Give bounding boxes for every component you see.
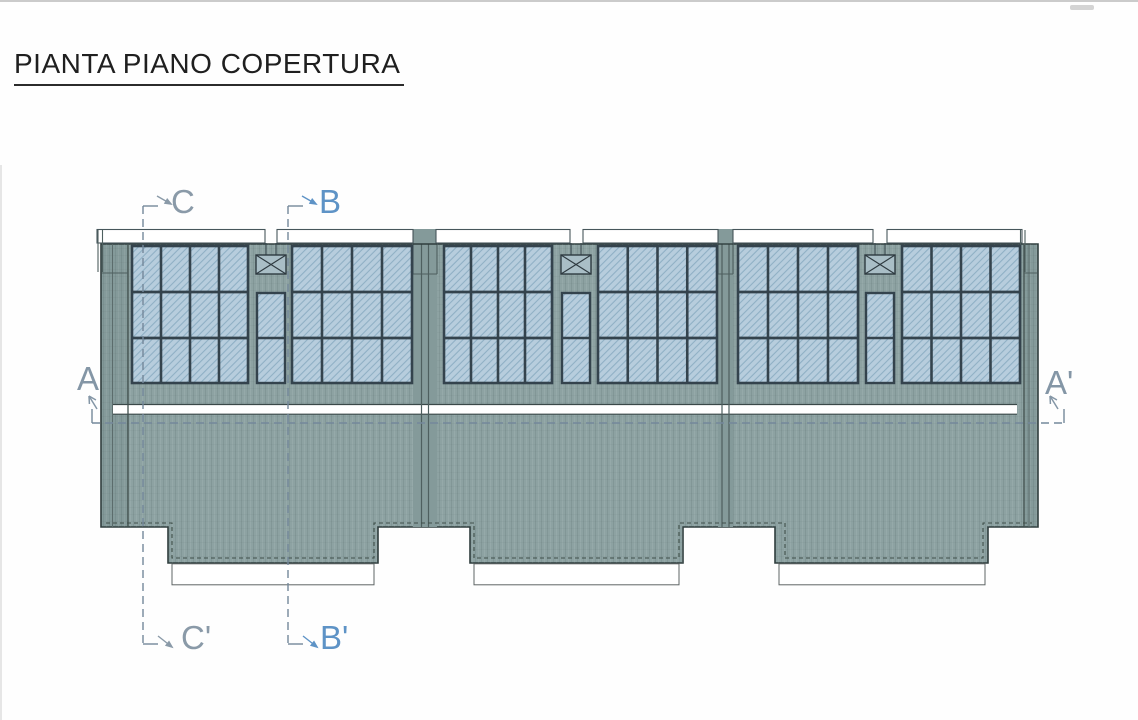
canopy: [172, 564, 374, 585]
section-label-b-prime: B': [320, 619, 348, 656]
canopy: [474, 564, 679, 585]
gutter-strip: [887, 230, 1022, 244]
canopy: [779, 564, 985, 585]
edge-band-left: [102, 245, 128, 526]
section-label-c: C: [171, 183, 195, 220]
roof-plan-page: PIANTA PIANO COPERTURA A A' B B' C C': [0, 0, 1138, 720]
section-label-a: A: [77, 360, 99, 397]
roof-plan-drawing: A A' B B' C C': [0, 0, 1138, 720]
section-label-b: B: [319, 183, 341, 220]
gutter-strip: [277, 230, 413, 244]
gutter-strip: [436, 230, 570, 244]
edge-band-right: [1024, 245, 1037, 526]
gutter-strip: [97, 230, 265, 244]
eaves-canopies: [172, 564, 985, 585]
section-arrow: [309, 198, 318, 205]
gutter-strip: [583, 230, 718, 244]
ridge-gap: [113, 405, 1017, 415]
gutter-strip: [733, 230, 873, 244]
section-label-c-prime: C': [181, 619, 211, 656]
generated-plan-geometry: [89, 196, 1064, 648]
section-label-a-prime: A': [1045, 364, 1073, 401]
